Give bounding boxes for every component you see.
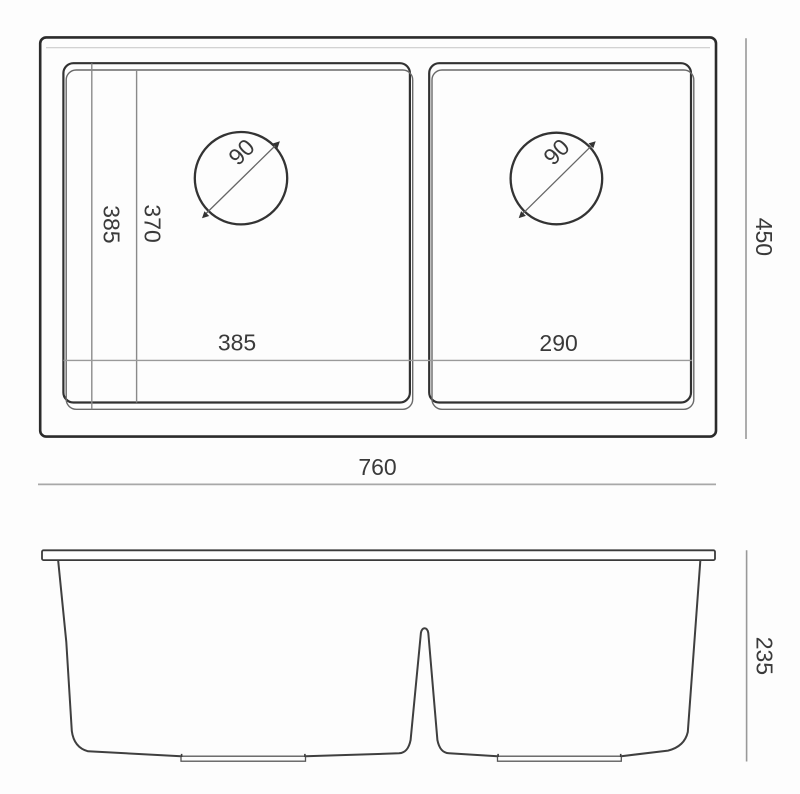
svg-text:385: 385 <box>98 205 124 243</box>
svg-text:235: 235 <box>752 637 778 675</box>
svg-text:370: 370 <box>139 204 165 242</box>
svg-text:450: 450 <box>751 218 777 256</box>
svg-text:290: 290 <box>539 330 577 356</box>
svg-text:760: 760 <box>358 454 396 480</box>
svg-text:385: 385 <box>218 330 256 356</box>
